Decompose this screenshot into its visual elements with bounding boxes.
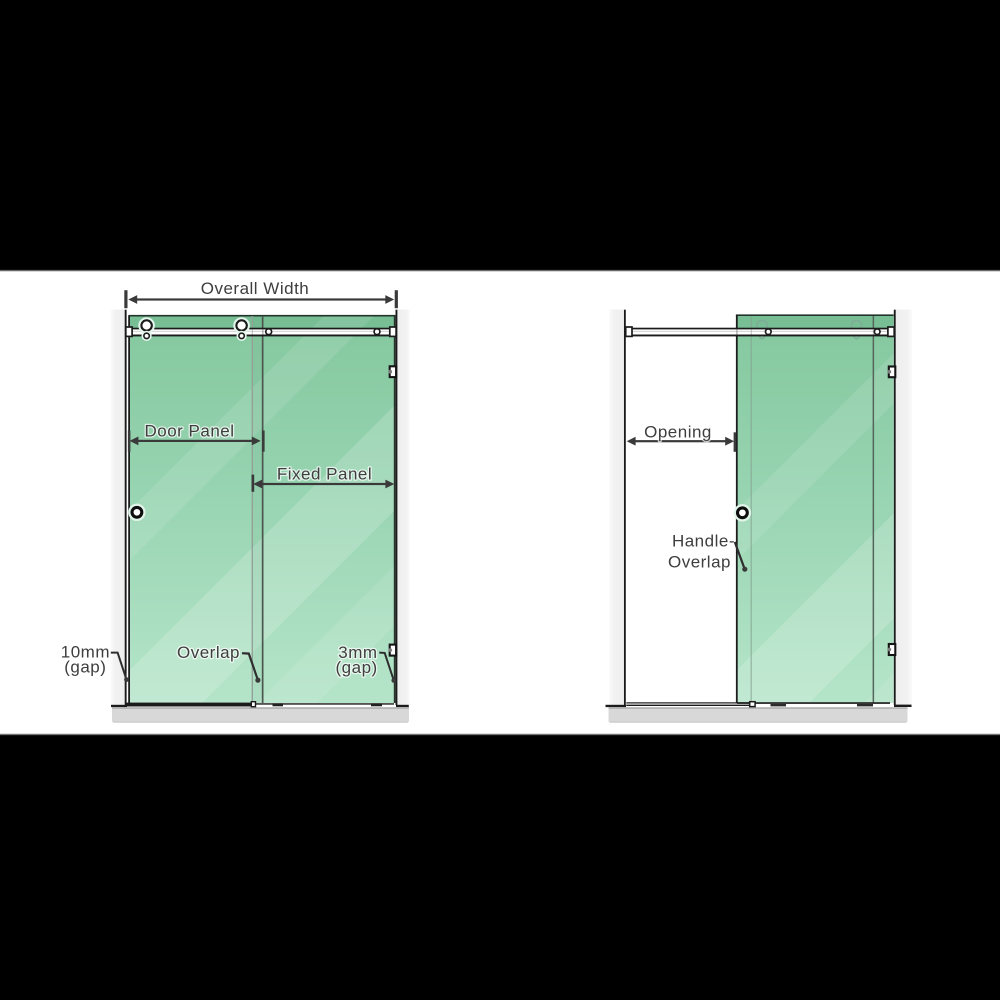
svg-text:(gap): (gap) xyxy=(64,657,106,676)
svg-text:Overlap: Overlap xyxy=(177,643,240,662)
svg-text:Fixed Panel: Fixed Panel xyxy=(277,464,372,483)
svg-text:Opening: Opening xyxy=(644,422,712,441)
svg-text:Handle-: Handle- xyxy=(672,532,735,551)
svg-text:Door Panel: Door Panel xyxy=(144,421,234,440)
svg-text:Overlap: Overlap xyxy=(668,552,731,571)
svg-text:(gap): (gap) xyxy=(336,658,378,677)
svg-text:Overall Width: Overall Width xyxy=(201,279,310,298)
